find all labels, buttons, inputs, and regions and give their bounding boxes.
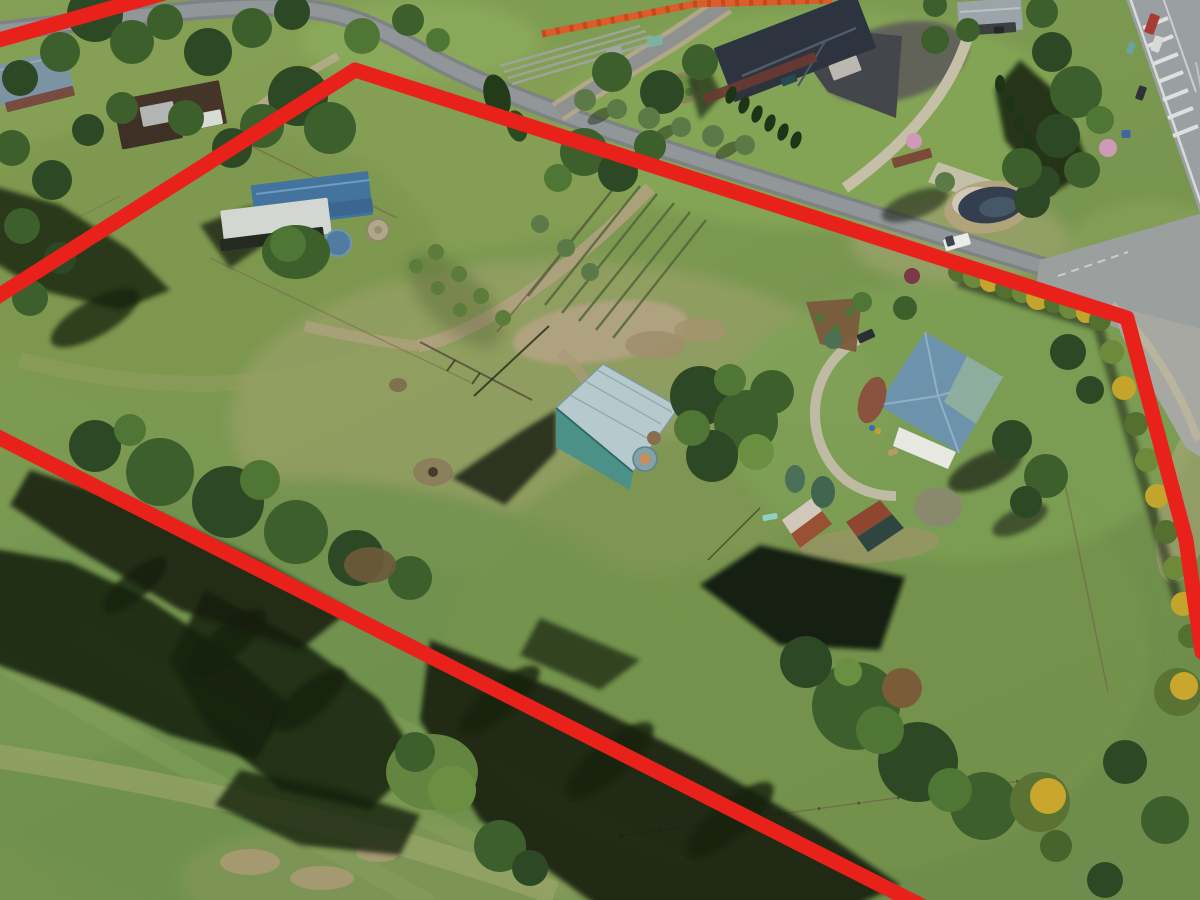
eucalyptus-tree [270, 226, 306, 262]
tree-canopy [240, 460, 280, 500]
tree-canopy [264, 500, 328, 564]
cypress-tree [1005, 95, 1015, 113]
cypress-tree [1014, 115, 1024, 133]
tree-canopy [426, 28, 450, 52]
tree-canopy [304, 102, 356, 154]
sapling-tree [531, 215, 549, 233]
wattle-bush [1030, 778, 1066, 814]
tree-canopy [780, 636, 832, 688]
tree-canopy [921, 26, 949, 54]
drone-photo [0, 0, 1200, 900]
conifer-tree [785, 465, 805, 493]
tree-canopy [852, 292, 872, 312]
tree-canopy [40, 32, 80, 72]
tree-canopy [992, 420, 1032, 460]
sapling-tree [557, 239, 575, 257]
tree-canopy [184, 28, 232, 76]
garden-shrub [845, 307, 855, 317]
gum-tree [428, 766, 476, 814]
sapling-tree [581, 263, 599, 281]
tree-canopy [1086, 106, 1114, 134]
tree-canopy [544, 164, 572, 192]
sapling-tree [473, 288, 489, 304]
tree-canopy [956, 18, 980, 42]
tree-canopy [147, 4, 183, 40]
tree-canopy [935, 172, 955, 192]
wattle-bush [1040, 830, 1072, 862]
sapling-tree [409, 259, 423, 273]
tree-canopy [1032, 32, 1072, 72]
tree-canopy [856, 706, 904, 754]
bare-patch-hole [428, 467, 438, 477]
tree-canopy [168, 100, 204, 136]
tree-canopy [893, 296, 917, 320]
sapling-tree [451, 266, 467, 282]
garden-conifer [824, 331, 842, 349]
tree-canopy [750, 370, 794, 414]
small-dirt-tree [389, 378, 407, 392]
wheelie-bin [875, 428, 881, 434]
tree-canopy [392, 4, 424, 36]
olive-tree-row [638, 107, 660, 129]
dirt-patch [220, 849, 280, 875]
tree-canopy [738, 434, 774, 470]
garden-shrub [815, 313, 825, 323]
plum-tree [904, 268, 920, 284]
dead-tree [882, 668, 922, 708]
dead-shrub [344, 547, 396, 583]
dirt-patch [290, 866, 354, 890]
pink-blossom-tree [906, 133, 922, 149]
tree-canopy [1050, 334, 1086, 370]
wattle-bush [1170, 672, 1198, 700]
conifer-tree [811, 476, 835, 508]
tree-canopy [1064, 152, 1100, 188]
dirt-patch [625, 331, 685, 359]
tree-canopy [114, 414, 146, 446]
tree-canopy [344, 18, 380, 54]
sapling-tree [495, 310, 511, 326]
water-tank [647, 431, 661, 445]
tree-canopy [834, 658, 862, 686]
tree-canopy [682, 44, 718, 80]
sapling-tree [428, 244, 444, 260]
hedge-bush [1100, 340, 1124, 364]
road-sign [1122, 130, 1131, 138]
tree-canopy [1076, 376, 1104, 404]
tree-canopy [1087, 862, 1123, 898]
hedge-bush [1112, 376, 1136, 400]
tree-canopy [1010, 486, 1042, 518]
olive-tree-row [574, 89, 596, 111]
tree-canopy [395, 732, 435, 772]
tree-canopy [674, 410, 710, 446]
tree-canopy [592, 52, 632, 92]
tree-canopy [714, 364, 746, 396]
olive-tree-row [735, 135, 755, 155]
olive-tree-row [702, 125, 724, 147]
tree-canopy [69, 420, 121, 472]
hedge-bush [1124, 412, 1148, 436]
bare-orchard-tree [914, 487, 962, 527]
tree-canopy [1036, 114, 1080, 158]
tree-canopy [4, 208, 40, 244]
tree-canopy [126, 438, 194, 506]
wheelie-bin [869, 425, 875, 431]
olive-tree-row [671, 117, 691, 137]
tree-canopy [110, 20, 154, 64]
tree-canopy [1141, 796, 1189, 844]
tree-canopy [1002, 148, 1042, 188]
tree-canopy [2, 60, 38, 96]
tree-canopy [512, 850, 548, 886]
tree-canopy [32, 160, 72, 200]
olive-tree-row [607, 99, 627, 119]
aerial-photo-property-boundary [0, 0, 1200, 900]
dirt-patch [674, 318, 726, 342]
tree-canopy [1103, 740, 1147, 784]
pink-blossom-tree [1099, 139, 1117, 157]
sapling-tree [431, 281, 445, 295]
water-tank-cap [374, 226, 382, 234]
water-tank-cap [639, 453, 651, 465]
sapling-tree [453, 303, 467, 317]
tree-canopy [106, 92, 138, 124]
garage-door [994, 26, 1004, 34]
cypress-tree [995, 75, 1005, 93]
tree-canopy [928, 768, 972, 812]
tree-canopy [72, 114, 104, 146]
tree-canopy [232, 8, 272, 48]
